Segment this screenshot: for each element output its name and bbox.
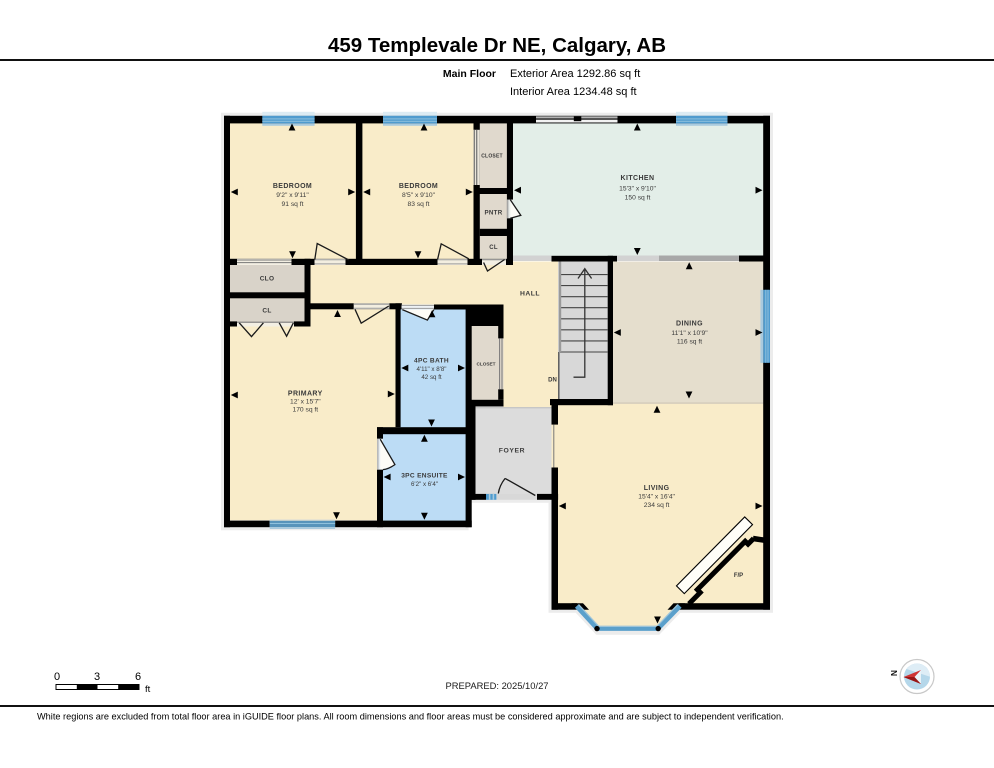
svg-text:CL: CL	[262, 308, 271, 315]
svg-text:42 sq ft: 42 sq ft	[421, 374, 442, 381]
svg-text:234 sq ft: 234 sq ft	[644, 502, 670, 509]
svg-text:KITCHEN: KITCHEN	[621, 175, 655, 182]
svg-text:9'2" x 9'11": 9'2" x 9'11"	[276, 192, 309, 199]
svg-text:N: N	[889, 670, 899, 676]
svg-text:15'3" x 9'10": 15'3" x 9'10"	[619, 186, 656, 193]
svg-text:DINING: DINING	[676, 321, 703, 328]
svg-text:6'2" x 6'4": 6'2" x 6'4"	[411, 481, 438, 488]
svg-text:150 sq ft: 150 sq ft	[625, 195, 651, 202]
svg-text:3: 3	[94, 671, 100, 683]
svg-text:PRIMARY: PRIMARY	[288, 391, 323, 398]
svg-text:PNTR: PNTR	[484, 210, 502, 217]
svg-text:15'4" x 16'4": 15'4" x 16'4"	[638, 494, 675, 501]
svg-text:PREPARED: 2025/10/27: PREPARED: 2025/10/27	[445, 680, 548, 691]
svg-text:BEDROOM: BEDROOM	[273, 183, 312, 190]
svg-text:4PC BATH: 4PC BATH	[414, 358, 449, 365]
svg-text:83 sq ft: 83 sq ft	[408, 201, 430, 208]
svg-text:116 sq ft: 116 sq ft	[677, 339, 702, 346]
svg-text:F/P: F/P	[734, 573, 743, 579]
svg-text:0: 0	[54, 671, 60, 683]
svg-text:3PC ENSUITE: 3PC ENSUITE	[401, 473, 448, 480]
svg-text:ft: ft	[145, 684, 151, 695]
svg-text:CLO: CLO	[260, 276, 275, 283]
svg-text:12' x 15'7": 12' x 15'7"	[290, 399, 321, 406]
svg-text:CLOSET: CLOSET	[476, 362, 495, 367]
svg-text:DN: DN	[548, 378, 557, 384]
svg-text:CL: CL	[489, 245, 498, 251]
svg-text:11'1" x 10'9": 11'1" x 10'9"	[671, 330, 708, 337]
svg-text:8'5" x 9'10": 8'5" x 9'10"	[402, 192, 436, 199]
svg-text:170 sq ft: 170 sq ft	[292, 407, 318, 414]
svg-text:HALL: HALL	[520, 291, 540, 298]
svg-text:Main Floor: Main Floor	[443, 68, 496, 80]
svg-text:Interior Area 1234.48 sq ft: Interior Area 1234.48 sq ft	[510, 86, 637, 98]
svg-text:White regions are excluded fro: White regions are excluded from total fl…	[37, 712, 784, 722]
svg-text:Exterior Area 1292.86 sq ft: Exterior Area 1292.86 sq ft	[510, 68, 640, 80]
svg-text:91 sq ft: 91 sq ft	[282, 201, 304, 208]
svg-text:CLOSET: CLOSET	[481, 154, 502, 160]
svg-text:LIVING: LIVING	[644, 485, 670, 492]
svg-text:459 Templevale Dr NE, Calgary,: 459 Templevale Dr NE, Calgary, AB	[328, 34, 666, 57]
svg-text:FOYER: FOYER	[499, 448, 525, 455]
svg-text:BEDROOM: BEDROOM	[399, 183, 438, 190]
svg-text:6: 6	[135, 671, 141, 683]
svg-text:4'11" x 8'8": 4'11" x 8'8"	[416, 366, 446, 373]
